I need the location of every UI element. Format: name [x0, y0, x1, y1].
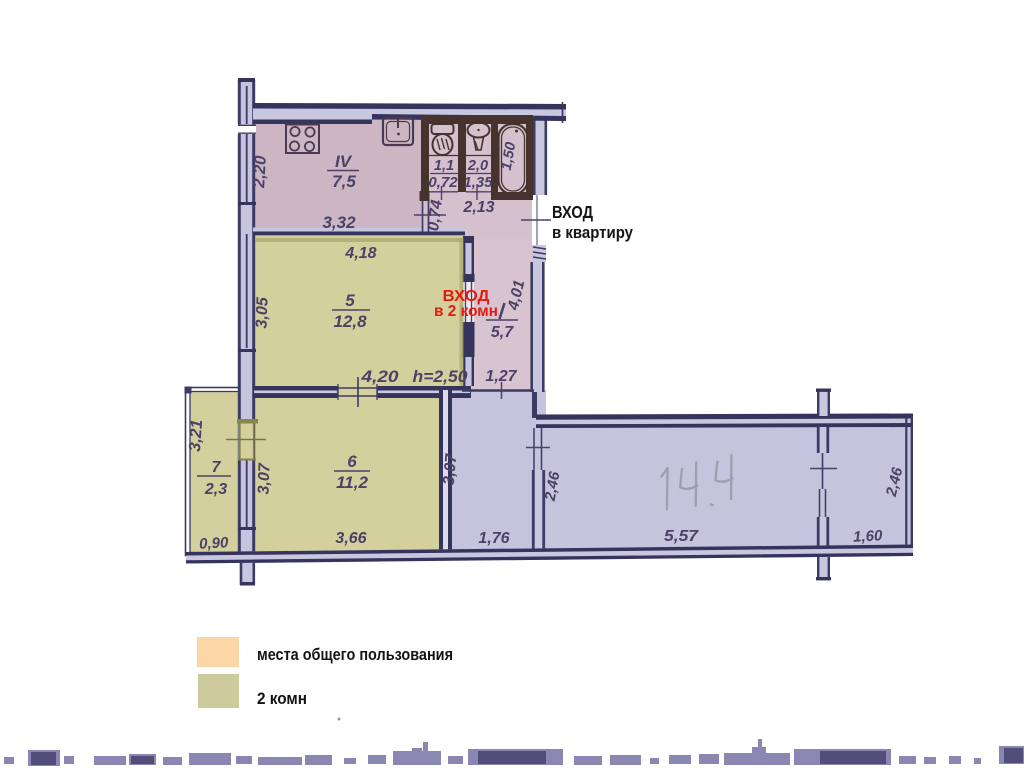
svg-text:1,27: 1,27	[485, 368, 517, 385]
svg-text:1,60: 1,60	[853, 527, 884, 546]
svg-text:5: 5	[345, 291, 355, 310]
svg-text:5,57: 5,57	[664, 528, 700, 545]
svg-text:6: 6	[347, 452, 357, 471]
svg-text:11,2: 11,2	[336, 473, 368, 492]
svg-text:ВХОД: ВХОД	[552, 202, 593, 222]
svg-text:1,76: 1,76	[478, 530, 509, 547]
svg-text:2,3: 2,3	[204, 481, 227, 498]
svg-text:4,18: 4,18	[344, 245, 376, 262]
svg-text:3,05: 3,05	[253, 296, 271, 329]
svg-text:2 комн: 2 комн	[257, 690, 307, 708]
svg-text:IV: IV	[335, 152, 353, 171]
svg-text:h=2,50: h=2,50	[413, 367, 469, 386]
svg-text:12,8: 12,8	[333, 312, 367, 331]
svg-text:3,66: 3,66	[335, 530, 366, 547]
svg-text:3,21: 3,21	[186, 419, 206, 452]
svg-text:5,7: 5,7	[491, 324, 514, 341]
svg-text:2,13: 2,13	[462, 199, 494, 216]
svg-text:4,20: 4,20	[360, 367, 399, 386]
svg-text:0,90: 0,90	[199, 534, 230, 553]
svg-text:2,20: 2,20	[250, 154, 270, 189]
svg-text:3,32: 3,32	[322, 213, 356, 232]
svg-text:3,07: 3,07	[441, 452, 461, 486]
svg-text:1,1: 1,1	[434, 158, 454, 174]
svg-text:7: 7	[212, 459, 222, 476]
svg-text:в 2 комн: в 2 комн	[434, 303, 498, 320]
svg-text:7,5: 7,5	[332, 172, 356, 191]
svg-text:1,35: 1,35	[463, 174, 493, 191]
svg-text:3,07: 3,07	[255, 462, 273, 495]
svg-text:места общего пользования: места общего пользования	[257, 646, 453, 664]
svg-text:0,72: 0,72	[428, 174, 458, 191]
svg-text:2,0: 2,0	[467, 158, 488, 174]
svg-text:в квартиру: в квартиру	[552, 224, 634, 242]
